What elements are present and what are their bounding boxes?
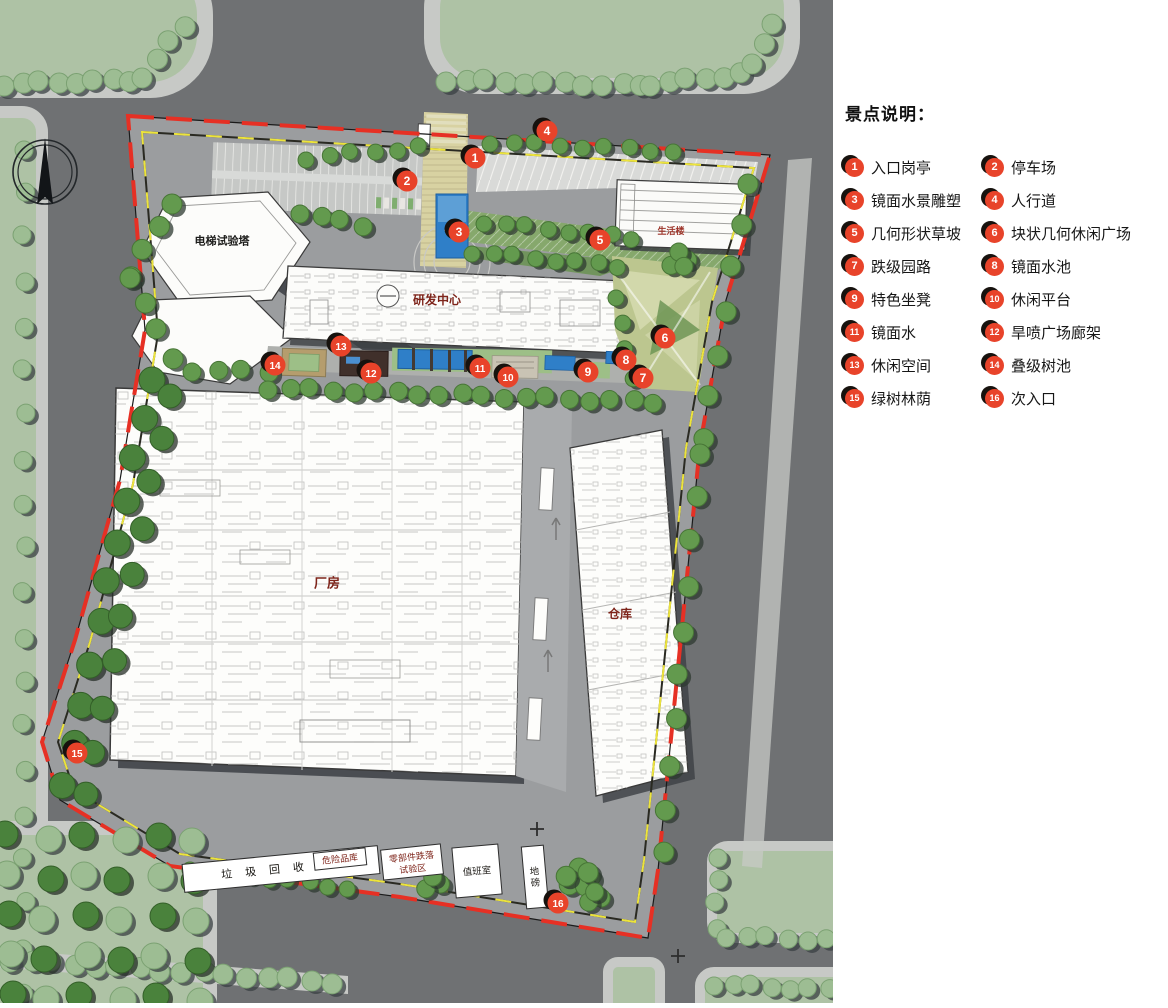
map-label-parts-drop-test-area: 零部件跌落试验区	[381, 844, 444, 880]
legend-item-14: 14叠级树池	[985, 349, 1163, 382]
map-marker-number: 2	[404, 174, 411, 188]
map-marker-number: 9	[585, 365, 592, 379]
tiered-tree-pools	[282, 348, 327, 377]
legend-item-label: 停车场	[1011, 157, 1056, 178]
legend-item-7: 7跌级园路	[845, 250, 985, 283]
legend-marker-badge-12: 12	[985, 323, 1004, 342]
map-marker-number: 4	[544, 124, 551, 138]
legend-item-16: 16次入口	[985, 382, 1163, 415]
map-label-text: 仓库	[607, 606, 632, 621]
legend-item-label: 特色坐凳	[871, 289, 931, 310]
legend-marker-number: 4	[985, 191, 1004, 210]
legend-marker-number: 2	[985, 158, 1004, 177]
map-marker-number: 14	[269, 361, 281, 372]
legend-marker-number: 8	[985, 257, 1004, 276]
legend-marker-badge-6: 6	[985, 224, 1004, 243]
map-label-text: 厂房	[314, 575, 340, 590]
map-label-text: 生活楼	[657, 225, 684, 236]
legend-marker-badge-13: 13	[845, 356, 864, 375]
legend-marker-number: 12	[985, 323, 1004, 342]
legend-item-8: 8镜面水池	[985, 250, 1163, 283]
map-marker-number: 10	[502, 373, 514, 384]
legend-item-label: 休闲平台	[1011, 289, 1071, 310]
legend-marker-badge-8: 8	[985, 257, 1004, 276]
legend-marker-number: 9	[845, 290, 864, 309]
map-label-duty-room: 值班室	[452, 844, 502, 898]
legend-item-label: 镜面水	[871, 322, 916, 343]
map-label-warehouse: 仓库	[607, 606, 632, 621]
map-label-rd-center: 研发中心	[413, 292, 461, 307]
legend-marker-number: 16	[985, 389, 1004, 408]
legend-marker-number: 15	[845, 389, 864, 408]
legend-item-label: 入口岗亭	[871, 157, 931, 178]
legend-marker-number: 11	[845, 323, 864, 342]
legend-marker-badge-7: 7	[845, 257, 864, 276]
legend-marker-number: 14	[985, 356, 1004, 375]
legend-item-label: 叠级树池	[1011, 355, 1071, 376]
legend-panel: 景点说明： 1入口岗亭2停车场3镜面水景雕塑4人行道5几何形状草坡6块状几何休闲…	[845, 100, 1163, 415]
legend-title: 景点说明：	[845, 100, 1163, 125]
map-marker-number: 6	[662, 331, 669, 345]
map-label-living-building: 生活楼	[657, 225, 684, 236]
legend-item-15: 15绿树林荫	[845, 382, 985, 415]
legend-item-5: 5几何形状草坡	[845, 217, 985, 250]
legend-marker-badge-5: 5	[845, 224, 864, 243]
master-plan-map: 电梯试验塔研发中心生活楼厂房仓库垃圾回收站危险品库零部件跌落试验区值班室地磅 1…	[0, 0, 833, 1003]
legend-item-12: 12旱喷广场廊架	[985, 316, 1163, 349]
legend-marker-badge-9: 9	[845, 290, 864, 309]
legend-item-label: 旱喷广场廊架	[1011, 322, 1101, 343]
legend-item-2: 2停车场	[985, 151, 1163, 184]
mirror-water-pool	[398, 348, 472, 372]
legend-item-label: 次入口	[1011, 388, 1056, 409]
legend-marker-number: 3	[845, 191, 864, 210]
map-marker-number: 1	[472, 151, 479, 165]
legend-marker-badge-11: 11	[845, 323, 864, 342]
map-label-factory: 厂房	[314, 575, 340, 590]
map-marker-number: 5	[597, 233, 604, 247]
legend-marker-badge-3: 3	[845, 191, 864, 210]
legend-marker-number: 1	[845, 158, 864, 177]
map-label-text: 值班室	[462, 864, 491, 878]
legend-marker-badge-4: 4	[985, 191, 1004, 210]
legend-grid: 1入口岗亭2停车场3镜面水景雕塑4人行道5几何形状草坡6块状几何休闲广场7跌级园…	[845, 151, 1163, 415]
legend-item-label: 镜面水景雕塑	[871, 190, 961, 211]
map-marker-number: 12	[365, 369, 377, 380]
site-plan-page: 电梯试验塔研发中心生活楼厂房仓库垃圾回收站危险品库零部件跌落试验区值班室地磅 1…	[0, 0, 1168, 1003]
map-marker-number: 7	[640, 371, 647, 385]
legend-marker-number: 10	[985, 290, 1004, 309]
map-marker-number: 11	[475, 364, 486, 375]
legend-item-label: 休闲空间	[871, 355, 931, 376]
legend-marker-number: 6	[985, 224, 1004, 243]
legend-marker-badge-16: 16	[985, 389, 1004, 408]
legend-item-4: 4人行道	[985, 184, 1163, 217]
legend-marker-badge-2: 2	[985, 158, 1004, 177]
map-marker-number: 15	[71, 749, 83, 760]
legend-marker-badge-14: 14	[985, 356, 1004, 375]
legend-item-label: 人行道	[1011, 190, 1056, 211]
legend-item-label: 几何形状草坡	[871, 223, 961, 244]
legend-marker-badge-10: 10	[985, 290, 1004, 309]
map-label-text: 电梯试验塔	[195, 234, 251, 248]
legend-item-3: 3镜面水景雕塑	[845, 184, 985, 217]
legend-marker-badge-15: 15	[845, 389, 864, 408]
legend-item-label: 块状几何休闲广场	[1011, 223, 1131, 244]
legend-item-6: 6块状几何休闲广场	[985, 217, 1163, 250]
map-marker-number: 13	[335, 342, 347, 353]
legend-marker-badge-1: 1	[845, 158, 864, 177]
legend-item-13: 13休闲空间	[845, 349, 985, 382]
map-marker-number: 3	[456, 225, 463, 239]
legend-item-10: 10休闲平台	[985, 283, 1163, 316]
map-label-elevator-test-tower: 电梯试验塔	[195, 234, 251, 248]
legend-marker-number: 5	[845, 224, 864, 243]
truck-road	[516, 402, 572, 792]
legend-item-label: 绿树林荫	[871, 388, 931, 409]
plan-svg: 电梯试验塔研发中心生活楼厂房仓库垃圾回收站危险品库零部件跌落试验区值班室地磅 1…	[0, 0, 833, 1003]
legend-item-label: 镜面水池	[1011, 256, 1071, 277]
legend-marker-number: 13	[845, 356, 864, 375]
legend-item-9: 9特色坐凳	[845, 283, 985, 316]
map-marker-number: 16	[552, 899, 564, 910]
map-label-text: 研发中心	[413, 292, 461, 307]
legend-item-label: 跌级园路	[871, 256, 931, 277]
map-marker-number: 8	[623, 353, 630, 367]
legend-item-1: 1入口岗亭	[845, 151, 985, 184]
legend-marker-number: 7	[845, 257, 864, 276]
legend-item-11: 11镜面水	[845, 316, 985, 349]
